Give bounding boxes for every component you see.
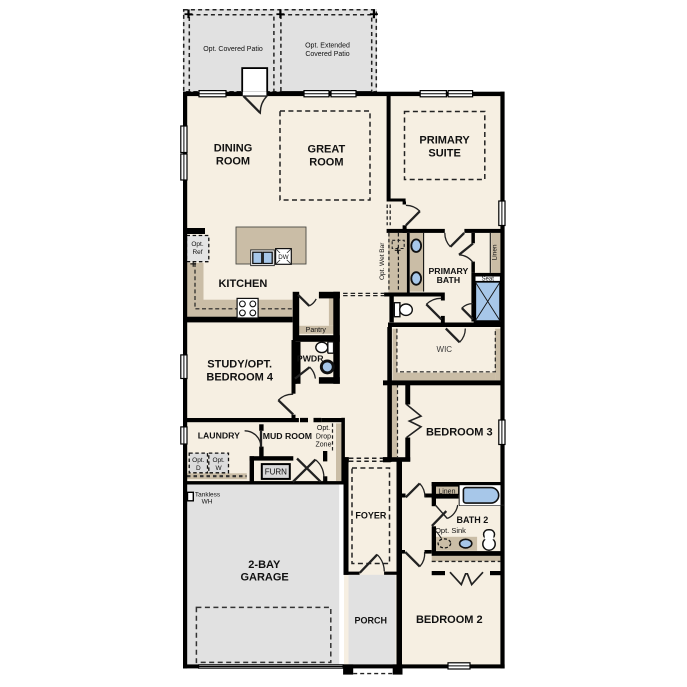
svg-text:MUD ROOM: MUD ROOM: [263, 431, 312, 441]
svg-text:WH: WH: [202, 498, 213, 505]
svg-text:BEDROOM 3: BEDROOM 3: [426, 427, 493, 439]
svg-text:LAUNDRY: LAUNDRY: [198, 430, 240, 440]
svg-text:Zone: Zone: [316, 442, 332, 449]
svg-text:STUDY/OPT.: STUDY/OPT.: [207, 358, 272, 370]
svg-text:Opt.: Opt.: [212, 457, 224, 464]
svg-text:BATH 2: BATH 2: [456, 515, 488, 525]
svg-text:KITCHEN: KITCHEN: [218, 278, 267, 290]
svg-text:WIC: WIC: [437, 345, 453, 354]
svg-text:Seat: Seat: [482, 276, 495, 282]
svg-text:BATH: BATH: [437, 275, 460, 285]
svg-text:Opt.: Opt.: [192, 457, 204, 464]
svg-text:SUITE: SUITE: [428, 147, 460, 159]
svg-text:2-BAY: 2-BAY: [248, 559, 281, 571]
svg-text:ROOM: ROOM: [309, 156, 343, 168]
svg-text:PWDR: PWDR: [297, 353, 324, 363]
svg-text:FURN: FURN: [265, 468, 287, 477]
svg-text:Ref: Ref: [192, 249, 202, 256]
svg-text:Pantry: Pantry: [306, 327, 327, 334]
svg-text:FOYER: FOYER: [355, 510, 387, 520]
svg-text:Opt. Sink: Opt. Sink: [435, 526, 466, 535]
svg-text:Drop: Drop: [316, 433, 331, 440]
svg-text:DW: DW: [278, 254, 288, 261]
svg-text:Opt. Wet Bar: Opt. Wet Bar: [379, 242, 386, 280]
svg-text:GREAT: GREAT: [308, 143, 346, 155]
svg-text:PORCH: PORCH: [354, 616, 387, 626]
svg-text:BEDROOM 2: BEDROOM 2: [416, 614, 483, 626]
svg-text:Linen: Linen: [438, 488, 455, 495]
svg-text:Covered Patio: Covered Patio: [305, 51, 349, 58]
svg-text:PRIMARY: PRIMARY: [419, 134, 470, 146]
svg-text:D: D: [196, 465, 201, 472]
svg-text:Linen: Linen: [491, 244, 498, 260]
svg-text:Opt.: Opt.: [317, 425, 330, 432]
svg-text:W: W: [216, 465, 223, 472]
svg-text:DINING: DINING: [214, 142, 253, 154]
svg-text:Opt. Covered Patio: Opt. Covered Patio: [203, 46, 263, 53]
svg-text:GARAGE: GARAGE: [240, 571, 288, 583]
svg-text:ROOM: ROOM: [216, 155, 250, 167]
svg-text:BEDROOM 4: BEDROOM 4: [206, 371, 274, 383]
svg-text:Opt.: Opt.: [191, 241, 203, 248]
svg-text:Opt. Extended: Opt. Extended: [305, 43, 350, 50]
